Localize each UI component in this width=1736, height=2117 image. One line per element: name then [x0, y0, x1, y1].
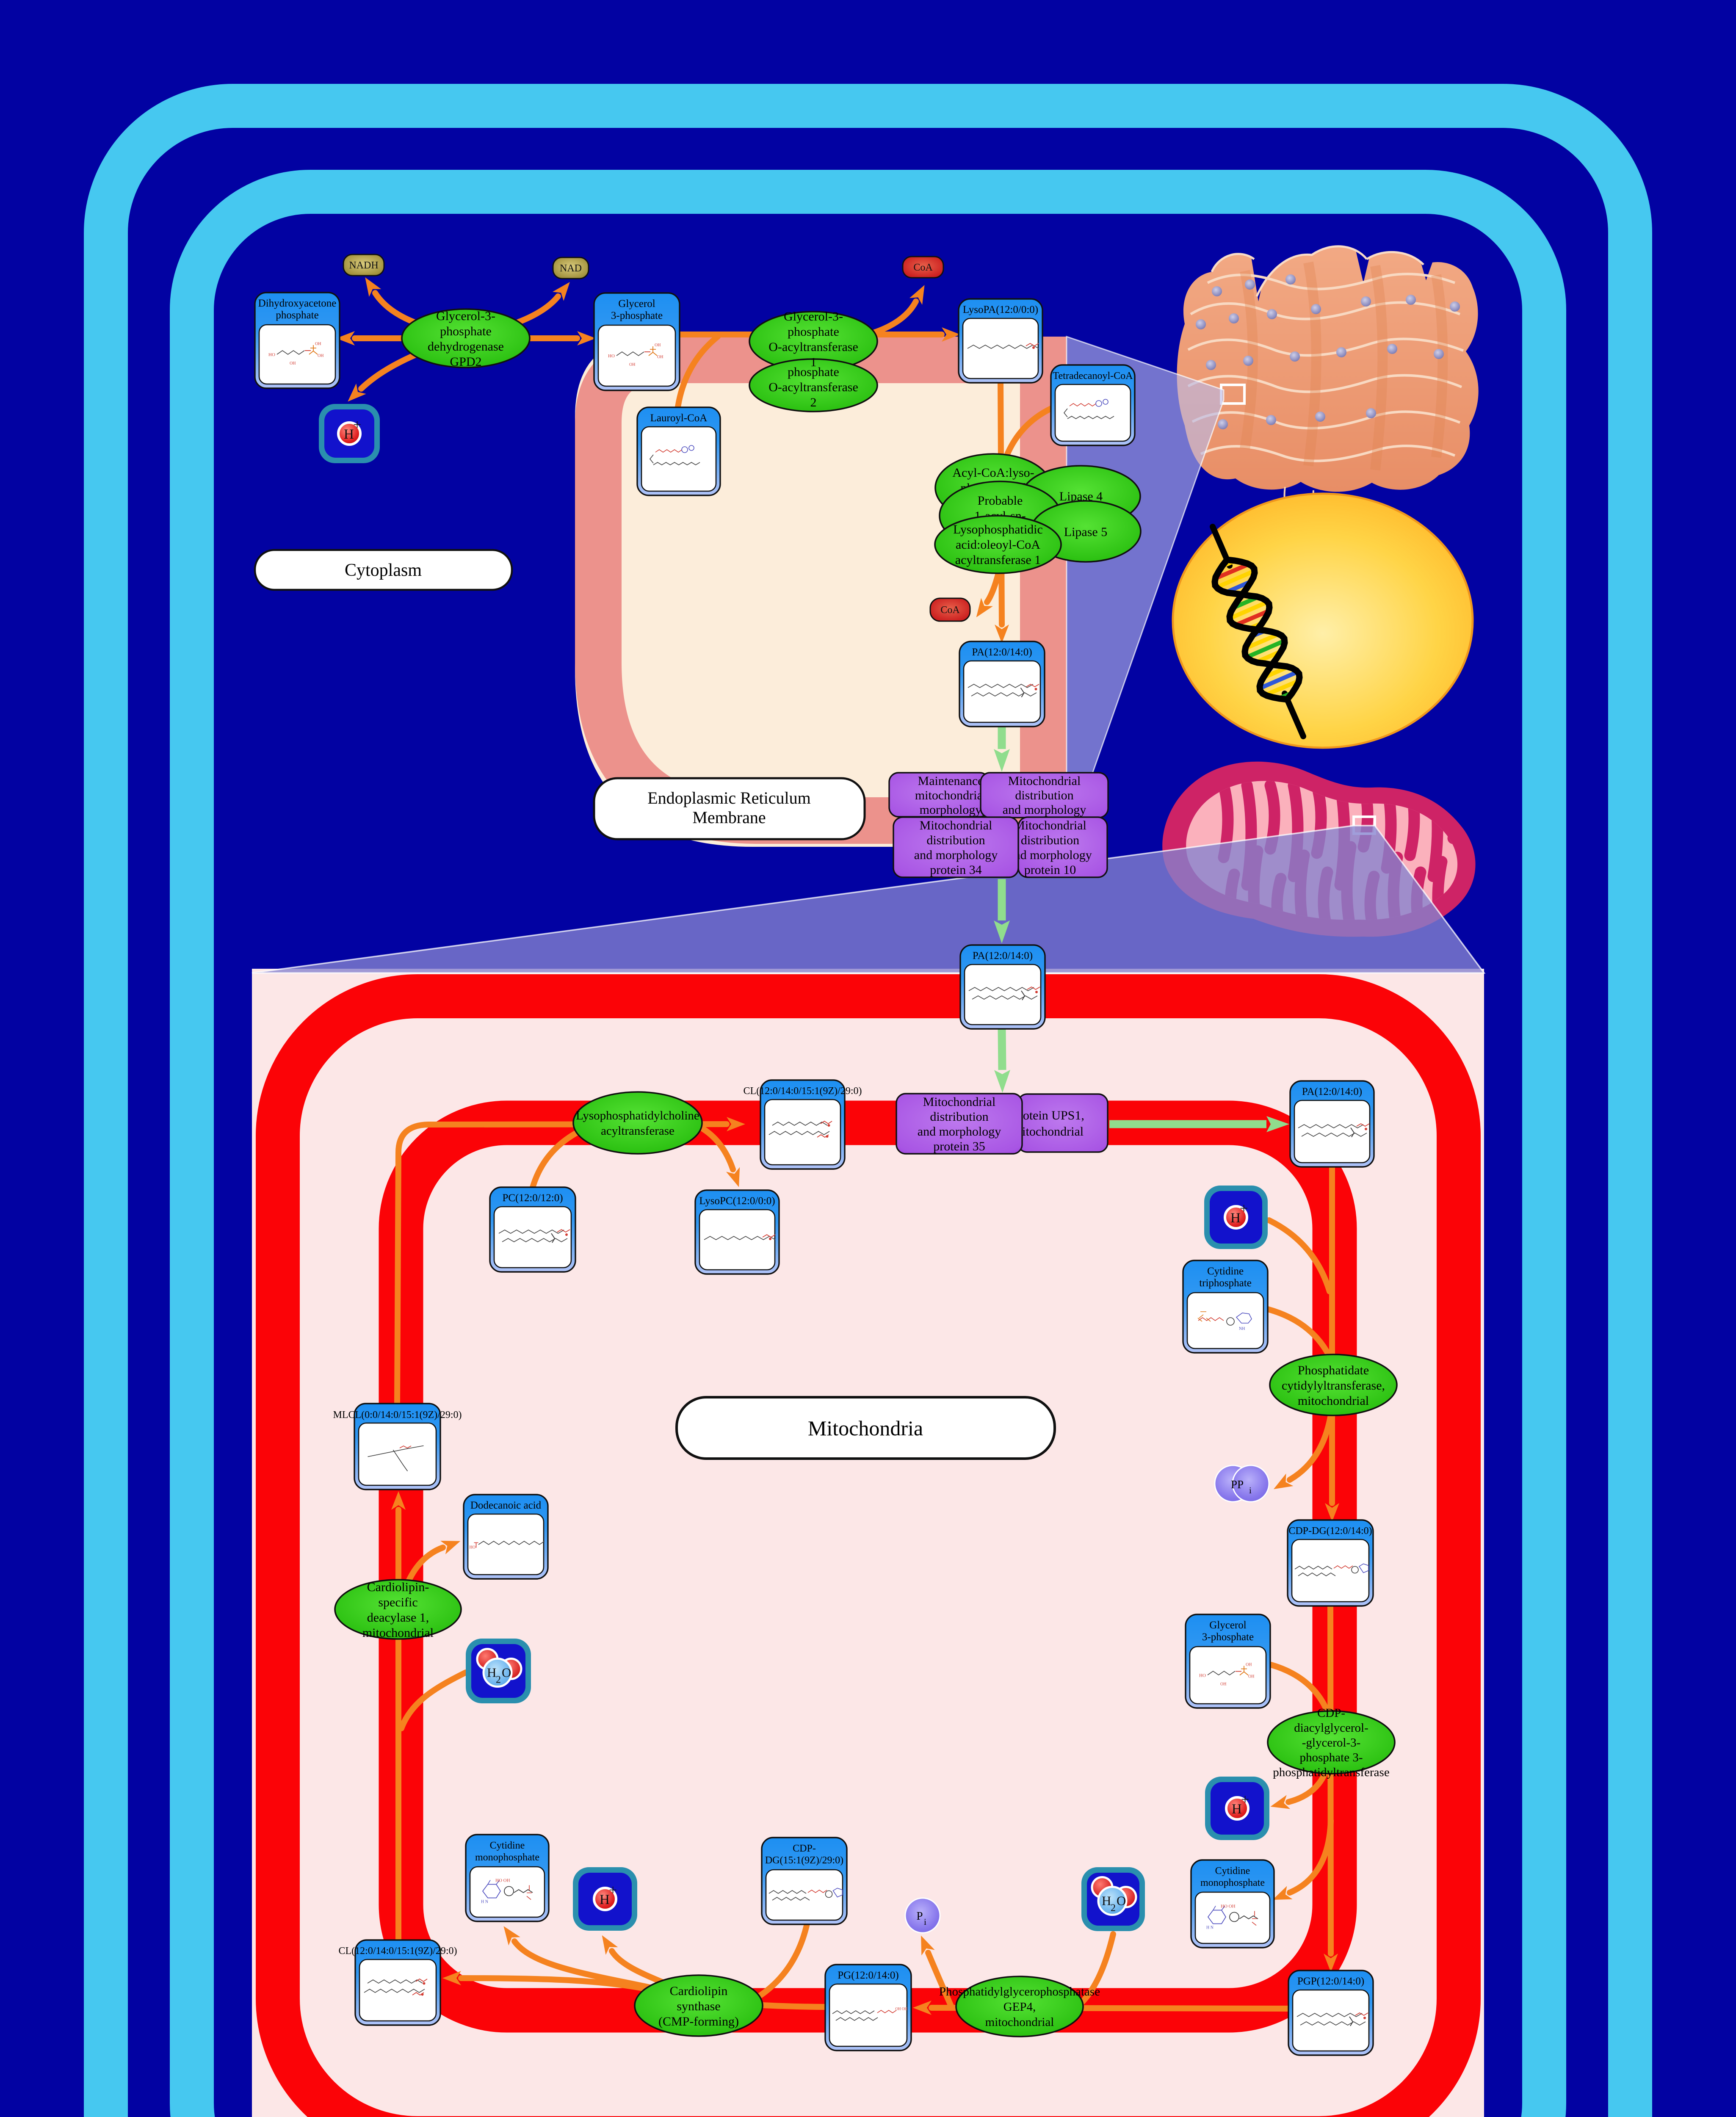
svg-text:Lysophosphatidic: Lysophosphatidic: [953, 522, 1043, 536]
svg-text:protein 10: protein 10: [1024, 863, 1076, 877]
svg-text:NADH: NADH: [349, 260, 378, 271]
svg-text:Glycerol-3-: Glycerol-3-: [436, 309, 495, 323]
svg-text:PA(12:0/14:0): PA(12:0/14:0): [972, 647, 1032, 658]
svg-text:PP: PP: [1231, 1478, 1244, 1491]
svg-text:Cytidine: Cytidine: [1207, 1266, 1244, 1277]
svg-text:acyltransferase: acyltransferase: [601, 1124, 674, 1138]
svg-text:Glycerol-3-: Glycerol-3-: [784, 310, 843, 323]
svg-text:PC(12:0/12:0): PC(12:0/12:0): [502, 1192, 563, 1204]
svg-text:phosphate 3-: phosphate 3-: [1300, 1751, 1363, 1764]
svg-text:CL(12:0/14:0/15:1(9Z)/29:0): CL(12:0/14:0/15:1(9Z)/29:0): [744, 1086, 862, 1097]
svg-text:Cytidine: Cytidine: [1215, 1866, 1250, 1877]
svg-text:triphosphate: triphosphate: [1199, 1277, 1252, 1289]
svg-text:Maintenance: Maintenance: [918, 774, 984, 788]
svg-text:O: O: [1117, 1893, 1126, 1908]
svg-text:O-acyltransferase: O-acyltransferase: [768, 340, 858, 354]
svg-text:Lipase 5: Lipase 5: [1064, 525, 1107, 539]
svg-text:HO OH: HO OH: [1221, 1904, 1236, 1909]
svg-text:H: H: [1230, 1211, 1241, 1226]
svg-text:dehydrogenase: dehydrogenase: [428, 340, 504, 354]
svg-text:OH: OH: [318, 354, 323, 358]
svg-text:GEP4,: GEP4,: [1003, 2000, 1036, 2014]
svg-text:3-phosphate: 3-phosphate: [1202, 1631, 1254, 1643]
svg-text:and morphology: and morphology: [1008, 848, 1092, 862]
svg-text:phosphate: phosphate: [788, 325, 839, 339]
svg-text:OH: OH: [1248, 1675, 1254, 1679]
svg-text:HO: HO: [470, 1545, 475, 1550]
svg-text:HO: HO: [268, 352, 275, 357]
svg-text:monophosphate: monophosphate: [475, 1852, 539, 1863]
svg-text:MLCL(0:0/14:0/15:1(9Z)/29:0): MLCL(0:0/14:0/15:1(9Z)/29:0): [333, 1409, 462, 1421]
svg-text:-glycerol-3-: -glycerol-3-: [1302, 1736, 1361, 1749]
svg-text:OH: OH: [1220, 1682, 1226, 1687]
svg-text:mitochondrial: mitochondrial: [362, 1626, 434, 1640]
svg-text:diacylglycerol-: diacylglycerol-: [1294, 1721, 1368, 1735]
svg-text:Dodecanoic acid: Dodecanoic acid: [470, 1500, 542, 1511]
svg-text:2: 2: [496, 1675, 501, 1686]
svg-text:H N: H N: [481, 1900, 488, 1904]
svg-text:and morphology: and morphology: [918, 1125, 1001, 1139]
svg-text:CDP-DG(12:0/14:0): CDP-DG(12:0/14:0): [1288, 1526, 1372, 1537]
svg-text:HO OH: HO OH: [495, 1878, 510, 1883]
svg-text:LysoPC(12:0/0:0): LysoPC(12:0/0:0): [699, 1195, 775, 1207]
svg-text:distribution: distribution: [926, 833, 985, 847]
svg-text:phosphate: phosphate: [788, 365, 839, 379]
svg-text:protein 34: protein 34: [930, 863, 981, 877]
svg-text:O: O: [502, 1665, 511, 1680]
svg-text:Lauroyl-CoA: Lauroyl-CoA: [650, 412, 708, 424]
svg-text:Dihydroxyacetone: Dihydroxyacetone: [258, 298, 337, 309]
svg-text:acid:oleoyl-CoA: acid:oleoyl-CoA: [956, 538, 1040, 552]
svg-text:i: i: [1249, 1485, 1252, 1495]
svg-text:OH: OH: [1246, 1663, 1252, 1667]
svg-text:Glycerol: Glycerol: [618, 298, 655, 310]
svg-text:PGP(12:0/14:0): PGP(12:0/14:0): [1297, 1976, 1364, 1987]
svg-text:mitochondrial: mitochondrial: [915, 788, 986, 802]
svg-text:Mitochondrial: Mitochondrial: [920, 818, 992, 832]
svg-text:NH: NH: [1239, 1327, 1245, 1331]
svg-text:OH: OH: [655, 343, 661, 348]
svg-text:cytidylyltransferase,: cytidylyltransferase,: [1282, 1379, 1385, 1393]
svg-text:distribution: distribution: [1021, 833, 1079, 847]
svg-text:Probable: Probable: [978, 494, 1023, 508]
svg-text:2: 2: [810, 395, 817, 409]
svg-text:Acyl-CoA:lyso-: Acyl-CoA:lyso-: [952, 466, 1034, 480]
svg-text:and morphology: and morphology: [1003, 803, 1086, 817]
svg-text:Mitochondria: Mitochondria: [808, 1416, 923, 1440]
svg-text:OH: OH: [657, 355, 663, 359]
svg-text:mitochondrial: mitochondrial: [1298, 1394, 1369, 1408]
svg-text:Phosphatidylglycerophosphatase: Phosphatidylglycerophosphatase: [939, 1985, 1100, 1998]
svg-text:CoA: CoA: [940, 605, 960, 616]
svg-text:CL(12:0/14:0/15:1(9Z)/29:0): CL(12:0/14:0/15:1(9Z)/29:0): [339, 1946, 457, 1957]
svg-text:H: H: [487, 1665, 496, 1680]
svg-text:OH: OH: [290, 361, 296, 366]
svg-text:GPD2: GPD2: [450, 355, 481, 369]
svg-text:synthase: synthase: [677, 1999, 720, 2013]
svg-text:OH OH: OH OH: [896, 2007, 908, 2011]
svg-text:deacylase 1,: deacylase 1,: [367, 1611, 429, 1625]
svg-text:DG(15:1(9Z)/29:0): DG(15:1(9Z)/29:0): [765, 1855, 843, 1866]
svg-text:PA(12:0/14:0): PA(12:0/14:0): [1302, 1086, 1362, 1097]
svg-text:morphology: morphology: [920, 803, 982, 817]
svg-text:Cytidine: Cytidine: [490, 1840, 525, 1851]
svg-text:3-phosphate: 3-phosphate: [611, 310, 663, 321]
svg-text:O-acyltransferase: O-acyltransferase: [768, 380, 858, 394]
svg-text:Glycerol: Glycerol: [1209, 1620, 1247, 1631]
svg-text:phosphate: phosphate: [276, 310, 318, 321]
svg-text:CDP-: CDP-: [1317, 1706, 1345, 1720]
svg-text:2: 2: [1111, 1903, 1116, 1914]
svg-text:Cardiolipin: Cardiolipin: [670, 1984, 728, 1998]
svg-text:H: H: [600, 1892, 610, 1907]
svg-text:H: H: [344, 427, 354, 442]
svg-text:protein 35: protein 35: [933, 1139, 985, 1153]
svg-text:Mitochondrial: Mitochondrial: [923, 1095, 996, 1109]
svg-text:distribution: distribution: [930, 1110, 988, 1124]
svg-text:Mitochondrial: Mitochondrial: [1008, 774, 1081, 788]
svg-text:H N: H N: [1206, 1926, 1214, 1930]
svg-text:P: P: [916, 1910, 923, 1922]
svg-text:H: H: [1232, 1802, 1242, 1817]
svg-text:Cytoplasm: Cytoplasm: [345, 561, 422, 580]
svg-text:HO: HO: [608, 354, 615, 359]
svg-text:mitochondrial: mitochondrial: [1012, 1125, 1084, 1139]
svg-text:acyltransferase 1: acyltransferase 1: [955, 553, 1041, 567]
svg-text:HO: HO: [1199, 1673, 1206, 1678]
svg-text:Cardiolipin-: Cardiolipin-: [367, 1580, 429, 1594]
svg-text:+: +: [1241, 1792, 1249, 1807]
svg-text:OH: OH: [629, 362, 635, 367]
svg-text:specific: specific: [378, 1595, 417, 1609]
svg-text:monophosphate: monophosphate: [1200, 1877, 1265, 1888]
svg-text:phosphate: phosphate: [440, 324, 492, 338]
svg-text:CDP-: CDP-: [793, 1843, 816, 1854]
svg-text:PA(12:0/14:0): PA(12:0/14:0): [973, 950, 1033, 962]
svg-text:mitochondrial: mitochondrial: [985, 2015, 1054, 2029]
svg-text:NAD: NAD: [560, 263, 582, 274]
svg-text:+: +: [1240, 1201, 1248, 1216]
svg-text:LysoPA(12:0/0:0): LysoPA(12:0/0:0): [963, 304, 1038, 315]
svg-text:OH: OH: [315, 342, 321, 346]
svg-text:+: +: [609, 1882, 617, 1898]
svg-text:H: H: [1102, 1893, 1111, 1908]
svg-text:CoA: CoA: [913, 262, 933, 273]
svg-text:Phosphatidate: Phosphatidate: [1298, 1363, 1369, 1377]
svg-text:Mitochondrial: Mitochondrial: [1014, 818, 1086, 832]
svg-text:Lysophosphatidylcholine: Lysophosphatidylcholine: [576, 1109, 699, 1122]
svg-text:distribution: distribution: [1015, 788, 1073, 802]
svg-text:+: +: [353, 417, 361, 433]
svg-text:(CMP-forming): (CMP-forming): [658, 2015, 739, 2029]
svg-text:and morphology: and morphology: [914, 848, 998, 862]
svg-text:phosphatidyltransferase: phosphatidyltransferase: [1273, 1766, 1389, 1779]
svg-text:PG(12:0/14:0): PG(12:0/14:0): [838, 1970, 898, 1981]
svg-text:Endoplasmic Reticulum: Endoplasmic Reticulum: [647, 788, 811, 807]
svg-text:Membrane: Membrane: [692, 808, 766, 827]
svg-text:Tetradecanoyl-CoA: Tetradecanoyl-CoA: [1053, 370, 1133, 381]
svg-text:i: i: [924, 1917, 926, 1927]
